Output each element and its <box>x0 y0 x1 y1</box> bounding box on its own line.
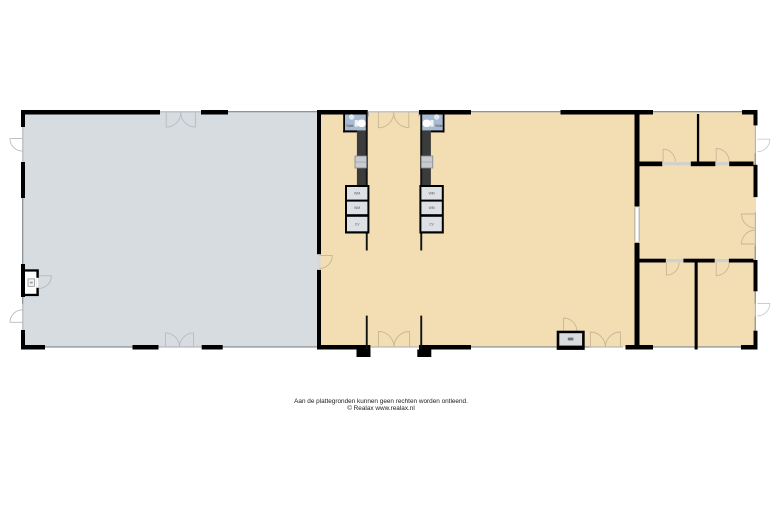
svg-text:WM: WM <box>429 192 435 196</box>
svg-text:WM: WM <box>429 206 435 210</box>
svg-text:CV: CV <box>429 222 434 226</box>
svg-text:WM: WM <box>354 192 360 196</box>
svg-text:Aan de plattegronden kunnen ge: Aan de plattegronden kunnen geen rechten… <box>294 398 468 405</box>
svg-text:CV: CV <box>355 222 360 226</box>
svg-text:WM: WM <box>354 206 360 210</box>
svg-text:Toilet: Toilet <box>435 124 443 128</box>
svg-text:© Realax www.realax.nl: © Realax www.realax.nl <box>347 404 415 412</box>
svg-text:Toilet: Toilet <box>346 124 354 128</box>
